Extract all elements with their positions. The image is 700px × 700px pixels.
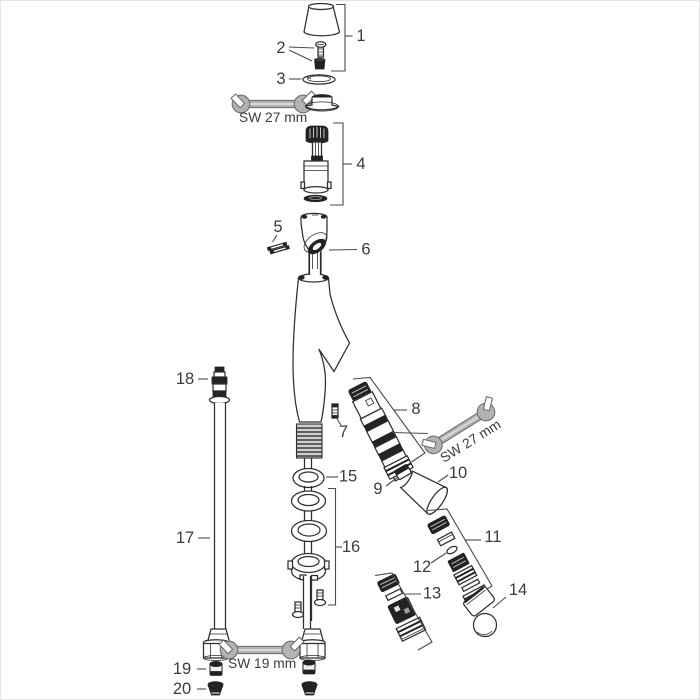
parts-diagram-image: 1 2 3 SW 27 mm [0,0,700,700]
part-13-check-valve-set [374,572,425,641]
callout-6-label: 6 [361,241,370,259]
callout-16: 16 [328,489,360,606]
callout-17-label: 17 [176,529,194,547]
part-18-hose-connector [210,367,230,404]
callout-2-label: 2 [276,39,285,57]
callout-9-label: 9 [373,480,382,498]
faucet-shank-thread [297,424,323,458]
faucet-supply-hose [300,576,325,661]
callout-16-label: 16 [342,538,360,556]
part-6-spout-head [301,213,331,274]
part-19-sleeve-left [210,661,222,675]
callout-17: 17 [176,529,210,547]
callout-12-label: 12 [413,558,431,576]
callout-12: 12 [413,553,446,576]
callout-15: 15 [326,468,357,486]
callout-3: 3 [276,70,301,88]
callout-14-label: 14 [509,581,527,599]
callout-4: 4 [330,123,366,205]
part-1-handle-grip [304,4,340,36]
callout-15-label: 15 [339,468,357,486]
callout-18: 18 [176,370,208,388]
callout-4-label: 4 [356,155,365,173]
part-20-plug-left [208,682,223,695]
callout-9: 9 [373,477,398,498]
part-19-sleeve-right [303,660,315,674]
callout-6: 6 [329,241,371,259]
callout-20: 20 [173,680,206,698]
callout-3-label: 3 [276,70,285,88]
callout-7: 7 [337,419,348,441]
part-20-plug-right [302,682,317,695]
callout-2: 2 [276,39,314,61]
wrench-top-label: SW 27 mm [239,110,307,125]
callout-11-label: 11 [484,528,501,546]
callout-7-label: 7 [339,423,348,441]
callout-8-label: 8 [411,400,420,418]
callout-19-label: 19 [173,660,191,678]
part-2-screw [316,42,326,57]
part-3-ring [303,75,335,84]
callout-1-label: 1 [356,27,365,45]
wrench-bottom-label: SW 19 mm [228,656,296,671]
callout-20-label: 20 [173,680,191,698]
exploded-diagram-canvas: 1 2 3 SW 27 mm [1,1,700,700]
callout-1: 1 [331,5,366,72]
callout-14: 14 [493,581,527,608]
callout-18-label: 18 [176,370,194,388]
part-15-oring [293,458,324,488]
part-17-supply-hose [215,403,226,629]
callout-10-label: 10 [449,464,467,482]
callout-10: 10 [438,464,467,482]
callout-5-label: 5 [273,218,282,236]
part-7-pin [332,404,338,418]
callout-13-label: 13 [423,585,441,603]
part-4-cartridge [301,126,331,202]
callout-5: 5 [273,218,283,242]
faucet-body [293,252,350,422]
wrench-leader-line [392,433,428,434]
part-2-plug [315,58,326,69]
callout-19: 19 [173,660,206,678]
part-5-clip [268,242,289,254]
